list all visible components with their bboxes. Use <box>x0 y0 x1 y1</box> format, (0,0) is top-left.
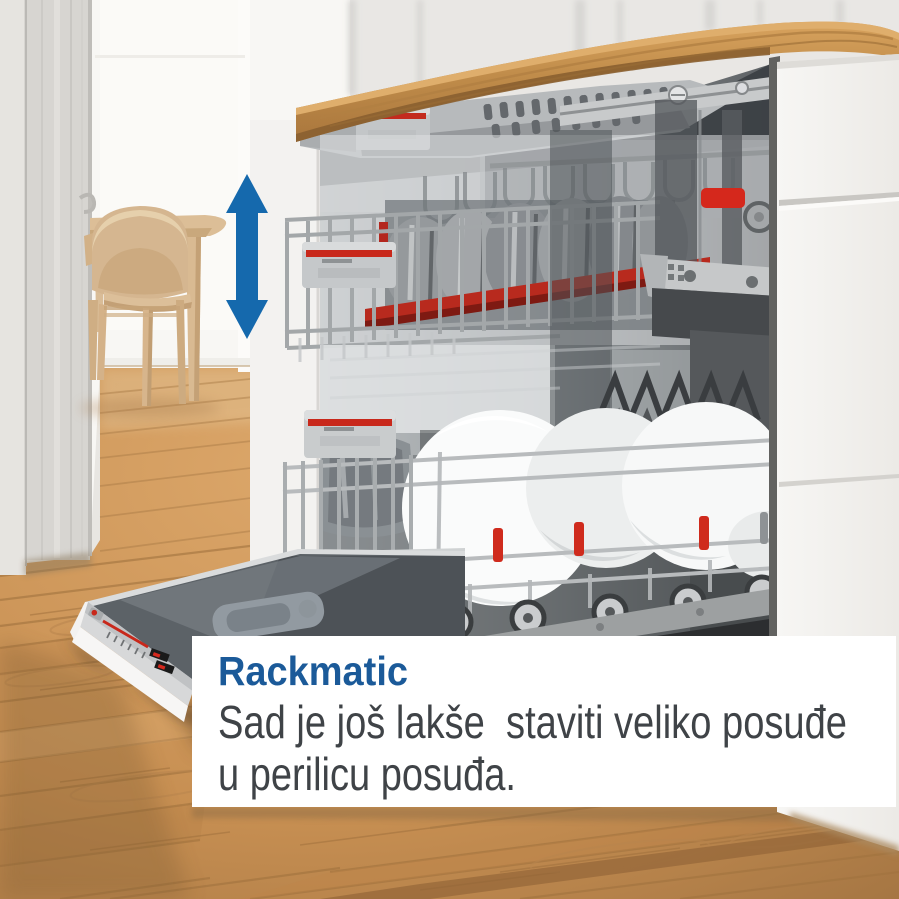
svg-text:u perilicu posuđa.: u perilicu posuđa. <box>218 748 516 800</box>
svg-text:Rackmatic: Rackmatic <box>218 648 408 694</box>
svg-text:Sad je još lakše staviti veli: Sad je još lakše staviti veliko posuđe <box>218 696 847 748</box>
